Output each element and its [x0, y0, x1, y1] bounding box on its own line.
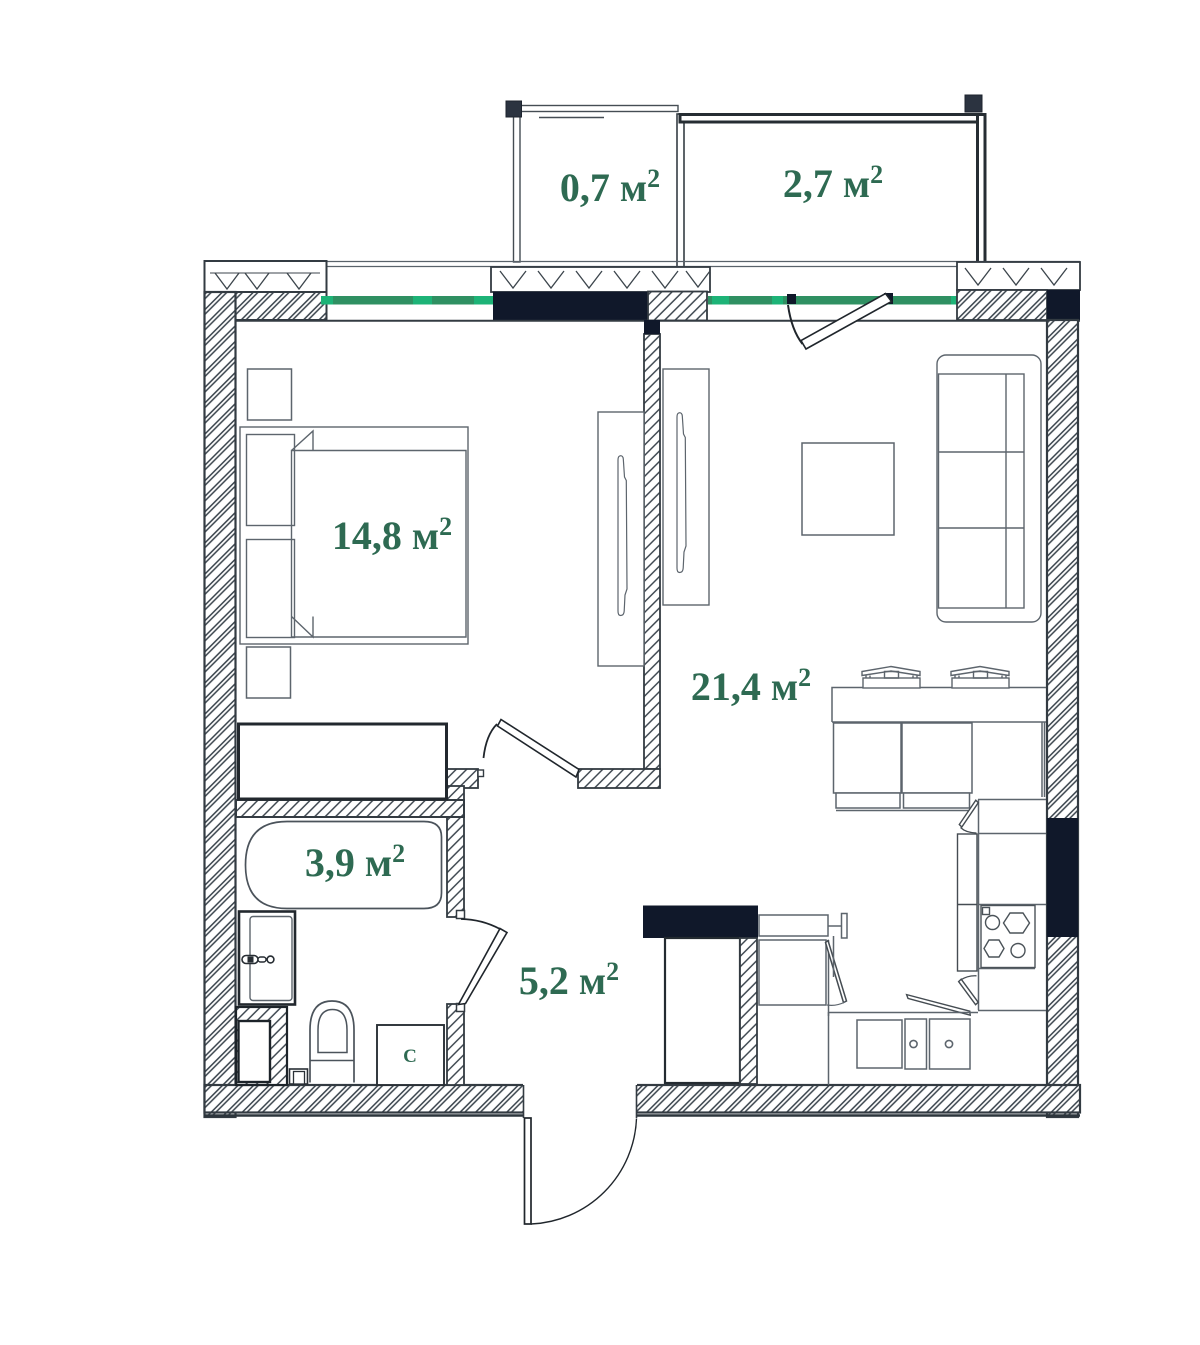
svg-text:5,2 м2: 5,2 м2	[519, 957, 619, 1003]
svg-text:3,9 м2: 3,9 м2	[305, 839, 405, 885]
svg-text:C: C	[403, 1046, 417, 1067]
svg-text:21,4 м2: 21,4 м2	[691, 663, 811, 709]
svg-text:14,8 м2: 14,8 м2	[332, 512, 452, 558]
svg-text:2,7 м2: 2,7 м2	[783, 160, 883, 206]
svg-text:0,7 м2: 0,7 м2	[560, 164, 660, 210]
